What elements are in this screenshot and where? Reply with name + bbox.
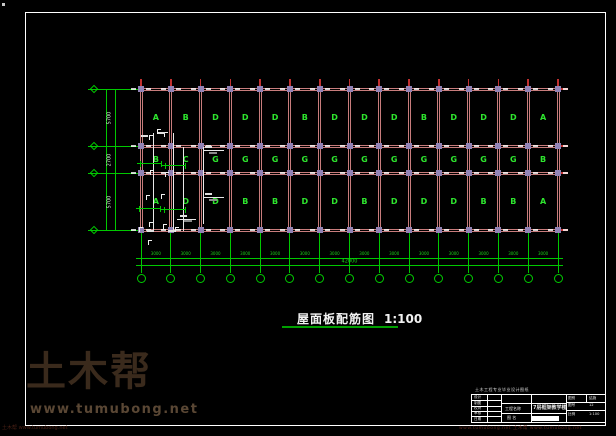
beam-dash — [295, 145, 300, 146]
slab-type-label: D — [391, 198, 398, 206]
rebar-hook — [148, 240, 152, 241]
watermark-footer-right: www.tumubong.net 土木帮 www.tumubong.net — [459, 425, 582, 431]
axis-diamond — [90, 169, 98, 177]
slab-type-label: B — [302, 114, 308, 122]
beam-dash — [235, 145, 240, 146]
grid-axis-vertical — [288, 86, 291, 233]
beam-dash — [503, 172, 508, 173]
slab-type-label: D — [421, 198, 428, 206]
beam-dash — [206, 88, 211, 89]
title-block-name-label: 图 名 — [507, 416, 516, 420]
grid-axis-vertical — [378, 86, 381, 233]
beam-dash — [265, 145, 270, 146]
beam-dash — [176, 145, 181, 146]
beam-dash — [488, 172, 493, 173]
grid-axis-vertical — [348, 86, 351, 233]
column-node — [376, 86, 382, 92]
column-node — [198, 227, 204, 233]
column-node — [227, 86, 233, 92]
axis-bubble — [375, 274, 384, 283]
column-node — [347, 170, 353, 176]
total-dim-text: 42000 — [342, 259, 358, 264]
beam-dash — [220, 229, 225, 230]
rebar-leader-line — [203, 150, 224, 151]
bay-dim-text: 3000 — [240, 252, 250, 256]
column-node — [495, 170, 501, 176]
slab-type-label: B — [421, 114, 427, 122]
slab-type-label: D — [331, 198, 338, 206]
axis-bubble — [434, 274, 443, 283]
beam-dash — [518, 145, 523, 146]
slab-type-label: D — [480, 114, 487, 122]
slab-type-label: D — [331, 114, 338, 122]
axis-bubble — [137, 274, 146, 283]
column-node — [376, 227, 382, 233]
beam-dash — [503, 229, 508, 230]
column-node — [555, 227, 561, 233]
distribution-bar-tick — [185, 207, 186, 213]
bar-anchor-plus — [137, 163, 144, 164]
beam-dash — [384, 172, 389, 173]
axis-bubble — [524, 274, 533, 283]
beam-dash — [459, 172, 464, 173]
column-node — [198, 86, 204, 92]
axis-bubble — [464, 274, 473, 283]
slab-type-label: D — [450, 114, 457, 122]
beam-dash — [310, 145, 315, 146]
rebar-annotation — [180, 215, 187, 217]
rebar-leader-line — [203, 197, 224, 198]
beam-dash — [220, 172, 225, 173]
beam-dash — [250, 88, 255, 89]
slab-type-label: G — [391, 156, 398, 164]
axis-extension-bottom — [141, 232, 142, 273]
left-dim-text: 5700 — [108, 195, 113, 208]
beam-dash — [563, 229, 568, 230]
axis-extension-bottom — [558, 232, 559, 273]
column-node — [317, 86, 323, 92]
beam-dash — [474, 172, 479, 173]
axis-bubble — [166, 274, 175, 283]
beam-dash — [503, 88, 508, 89]
rebar-hook — [157, 129, 161, 130]
column-node — [525, 170, 531, 176]
column-node — [347, 86, 353, 92]
title-block-divider — [501, 395, 502, 422]
bar-anchor-plus — [136, 208, 143, 209]
beam-dash — [176, 172, 181, 173]
column-node — [257, 143, 263, 149]
column-node — [317, 143, 323, 149]
rebar-hook — [146, 195, 150, 196]
bay-dim-text: 3000 — [359, 252, 369, 256]
rebar-section-line — [203, 147, 204, 224]
beam-dash — [369, 88, 374, 89]
slab-type-label: B — [540, 156, 546, 164]
grid-axis-vertical — [408, 86, 411, 233]
grid-axis-vertical — [497, 86, 500, 233]
beam-dash — [399, 88, 404, 89]
slab-type-label: B — [242, 198, 248, 206]
column-node — [406, 86, 412, 92]
column-node — [257, 86, 263, 92]
axis-extension-bottom — [468, 232, 469, 273]
tumubong-logo: 土木帮 — [26, 352, 152, 392]
title-block-left-row: 审核 — [474, 412, 481, 416]
column-node — [257, 227, 263, 233]
axis-bubble — [256, 274, 265, 283]
beam-dash — [399, 145, 404, 146]
axis-extension-bottom — [528, 232, 529, 273]
beam-dash — [325, 145, 330, 146]
column-node — [347, 227, 353, 233]
axis-diamond — [90, 226, 98, 234]
beam-dash — [355, 145, 360, 146]
rebar-annotation — [205, 146, 212, 148]
beam-dash — [161, 88, 166, 89]
slab-type-label: G — [242, 156, 249, 164]
column-node — [436, 170, 442, 176]
beam-dash — [235, 229, 240, 230]
beam-dash — [533, 172, 538, 173]
rebar-hook — [165, 172, 169, 173]
column-node — [406, 143, 412, 149]
bay-dim-text: 3000 — [389, 252, 399, 256]
rebar-hook — [175, 227, 179, 228]
rebar-annotation — [158, 132, 165, 134]
rebar-hook — [163, 224, 167, 225]
beam-dash — [191, 229, 196, 230]
bay-dim-text: 3000 — [508, 252, 518, 256]
beam-dash — [474, 229, 479, 230]
beam-dash — [355, 88, 360, 89]
grid-axis-vertical — [467, 86, 470, 233]
rebar-hook — [161, 194, 165, 195]
beam-dash — [444, 172, 449, 173]
grid-axis-vertical — [318, 86, 321, 233]
slab-type-label: G — [212, 156, 219, 164]
axis-bubble — [196, 274, 205, 283]
axis-extension-bottom — [349, 232, 350, 273]
beam-dash — [548, 145, 553, 146]
slab-type-label: B — [272, 198, 278, 206]
beam-dash — [444, 145, 449, 146]
slab-type-label: B — [183, 114, 189, 122]
axis-diamond — [90, 142, 98, 150]
title-block: 设计 制图 校对 审核 日期 工程名称 7层框架教学楼 图 名 图别 结施 图号… — [471, 394, 606, 423]
title-block-divider — [586, 395, 587, 402]
beam-dash — [563, 145, 568, 146]
axis-extension-bottom — [200, 232, 201, 273]
column-node — [376, 170, 382, 176]
slab-type-label: B — [510, 198, 516, 206]
column-node — [317, 227, 323, 233]
beam-dash — [369, 229, 374, 230]
rebar-annotation — [168, 230, 175, 232]
beam-dash — [161, 145, 166, 146]
beam-dash — [429, 172, 434, 173]
slab-type-label: G — [450, 156, 457, 164]
title-block-rowline — [501, 403, 567, 404]
rebar-hook — [149, 222, 153, 223]
beam-dash — [340, 145, 345, 146]
slab-type-label: D — [450, 198, 457, 206]
title-block-right-value: 1:100 — [589, 413, 599, 417]
slab-type-label: D — [242, 114, 249, 122]
beam-dash — [131, 229, 136, 230]
title-block-left-row: 设计 — [474, 396, 481, 400]
axis-bubble — [226, 274, 235, 283]
bay-dim-text: 3000 — [300, 252, 310, 256]
column-node — [525, 86, 531, 92]
beam-dash — [414, 145, 419, 146]
slab-type-label: D — [272, 114, 279, 122]
beam-dash — [414, 88, 419, 89]
beam-dash — [518, 229, 523, 230]
beam-dash — [310, 229, 315, 230]
column-node — [525, 227, 531, 233]
column-node — [495, 143, 501, 149]
beam-dash — [265, 172, 270, 173]
title-block-rowline — [566, 410, 606, 411]
beam-dash — [355, 229, 360, 230]
slab-type-label: A — [153, 114, 159, 122]
column-node — [466, 227, 472, 233]
watermark-footer-left: 土木帮 www.tumubong.net — [2, 424, 68, 431]
beam-dash — [191, 145, 196, 146]
beam-dash — [176, 229, 181, 230]
beam-dash — [191, 172, 196, 173]
column-node — [466, 170, 472, 176]
left-dim-text: 5700 — [108, 111, 113, 124]
column-node — [555, 170, 561, 176]
beam-dash — [563, 88, 568, 89]
slab-type-label: B — [361, 198, 367, 206]
axis-extension-bottom — [409, 232, 410, 273]
left-dim-line — [115, 89, 116, 231]
title-block-left-row: 制图 — [474, 402, 481, 406]
column-node — [227, 143, 233, 149]
distribution-bar-tick — [185, 163, 186, 169]
axis-bubble — [285, 274, 294, 283]
rebar-section-line — [173, 133, 174, 231]
beam-dash — [295, 229, 300, 230]
axis-bubble — [554, 274, 563, 283]
axis-diamond — [90, 85, 98, 93]
beam-dash — [310, 172, 315, 173]
beam-dash — [220, 145, 225, 146]
beam-dash — [518, 172, 523, 173]
beam-dash — [369, 145, 374, 146]
slab-type-label: B — [480, 198, 486, 206]
left-dim-text: 2700 — [108, 153, 113, 166]
bottom-dim-line-2 — [136, 265, 563, 266]
slab-type-label: D — [510, 114, 517, 122]
title-block-drawing-name-box — [532, 416, 559, 422]
column-node — [317, 170, 323, 176]
beam-dash — [459, 145, 464, 146]
slab-type-label: D — [212, 114, 219, 122]
bar-anchor-plus — [162, 165, 169, 166]
beam-dash — [220, 88, 225, 89]
title-block-rowline — [501, 413, 567, 414]
grid-axis-vertical — [557, 86, 560, 233]
beam-dash — [488, 229, 493, 230]
beam-dash — [503, 145, 508, 146]
column-node — [495, 86, 501, 92]
beam-dash — [429, 229, 434, 230]
bay-dim-text: 3000 — [478, 252, 488, 256]
beam-dash — [474, 88, 479, 89]
beam-dash — [340, 229, 345, 230]
beam-dash — [414, 229, 419, 230]
beam-dash — [280, 172, 285, 173]
beam-dash — [533, 88, 538, 89]
axis-extension-bottom — [438, 232, 439, 273]
axis-extension-bottom — [379, 232, 380, 273]
drawing-title-underline — [282, 326, 398, 328]
drawing-title: 屋面板配筋图1:100 — [297, 310, 422, 327]
beam-dash — [131, 88, 136, 89]
beam-dash — [533, 229, 538, 230]
beam-dash — [176, 88, 181, 89]
beam-dash — [161, 229, 166, 230]
column-node — [287, 143, 293, 149]
beam-dash — [444, 229, 449, 230]
rebar-dim-annotation — [184, 220, 192, 222]
beam-dash — [533, 145, 538, 146]
column-node — [436, 143, 442, 149]
title-block-header: 土木工程专业毕业设计图纸 — [475, 387, 529, 393]
beam-dash — [146, 145, 151, 146]
beam-dash — [340, 172, 345, 173]
slab-type-label: A — [540, 114, 546, 122]
column-node — [495, 227, 501, 233]
column-node — [138, 143, 144, 149]
column-node — [466, 86, 472, 92]
beam-dash — [474, 145, 479, 146]
beam-dash — [518, 88, 523, 89]
axis-bubble — [405, 274, 414, 283]
bay-dim-text: 3000 — [210, 252, 220, 256]
beam-dash — [265, 229, 270, 230]
beam-dash — [250, 229, 255, 230]
column-node — [257, 170, 263, 176]
grid-axis-vertical — [527, 86, 530, 233]
slab-type-label: G — [331, 156, 338, 164]
tumubong-url: www.tumubong.net — [30, 402, 198, 417]
bay-dim-text: 3000 — [419, 252, 429, 256]
beam-dash — [295, 172, 300, 173]
beam-dash — [280, 88, 285, 89]
beam-dash — [488, 145, 493, 146]
column-node — [555, 86, 561, 92]
beam-dash — [444, 88, 449, 89]
rebar-annotation — [141, 135, 148, 137]
beam-dash — [563, 172, 568, 173]
axis-bubble — [345, 274, 354, 283]
column-node — [436, 227, 442, 233]
beam-dash — [325, 172, 330, 173]
beam-dash — [131, 145, 136, 146]
column-node — [287, 170, 293, 176]
beam-dash — [235, 172, 240, 173]
title-block-right-label: 图别 — [568, 397, 575, 401]
beam-dash — [429, 88, 434, 89]
slab-type-label: G — [302, 156, 309, 164]
slab-type-label: D — [361, 114, 368, 122]
bay-dim-text: 3000 — [181, 252, 191, 256]
rebar-dim-annotation — [209, 152, 217, 154]
title-block-left-row: 日期 — [474, 418, 481, 422]
beam-dash — [384, 229, 389, 230]
column-node — [227, 227, 233, 233]
column-node — [138, 170, 144, 176]
bay-dim-text: 3000 — [270, 252, 280, 256]
rebar-annotation — [205, 193, 212, 195]
beam-dash — [191, 88, 196, 89]
column-node — [287, 86, 293, 92]
beam-dash — [146, 88, 151, 89]
bar-anchor-plus — [161, 209, 168, 210]
beam-dash — [131, 172, 136, 173]
column-node — [138, 86, 144, 92]
title-block-right-label: 图号 — [568, 404, 575, 408]
column-node — [287, 227, 293, 233]
bay-dim-text: 3000 — [330, 252, 340, 256]
beam-dash — [340, 88, 345, 89]
cad-drawing-viewport: ABDDDBDDDBDDDABCGGGGGGGGGGGBADDBBDDBDDDB… — [0, 0, 616, 436]
axis-extension-bottom — [289, 232, 290, 273]
beam-dash — [235, 88, 240, 89]
rebar-hook — [139, 227, 143, 228]
column-node — [347, 143, 353, 149]
column-node — [406, 170, 412, 176]
grid-axis-vertical — [229, 86, 232, 233]
beam-dash — [399, 172, 404, 173]
slab-type-label: D — [301, 198, 308, 206]
axis-bubble — [494, 274, 503, 283]
beam-dash — [459, 88, 464, 89]
bay-dim-text: 3000 — [151, 252, 161, 256]
beam-dash — [384, 88, 389, 89]
column-node — [168, 86, 174, 92]
beam-dash — [399, 229, 404, 230]
title-block-right-value: 结施 — [589, 397, 596, 401]
column-node — [376, 143, 382, 149]
grid-axis-vertical — [199, 86, 202, 233]
beam-dash — [250, 172, 255, 173]
beam-dash — [206, 172, 211, 173]
column-node — [227, 170, 233, 176]
slab-type-label: G — [361, 156, 368, 164]
rebar-annotation — [147, 230, 154, 232]
column-node — [436, 86, 442, 92]
beam-dash — [280, 229, 285, 230]
beam-dash — [250, 145, 255, 146]
axis-extension-bottom — [230, 232, 231, 273]
title-block-project-label: 工程名称 — [505, 407, 521, 411]
title-block-right-value: 12 — [589, 404, 594, 408]
axis-extension-bottom — [260, 232, 261, 273]
slab-type-label: G — [272, 156, 279, 164]
column-node — [525, 143, 531, 149]
slab-type-label: A — [540, 198, 546, 206]
beam-dash — [459, 229, 464, 230]
beam-dash — [384, 145, 389, 146]
beam-dash — [310, 88, 315, 89]
grid-axis-vertical — [437, 86, 440, 233]
